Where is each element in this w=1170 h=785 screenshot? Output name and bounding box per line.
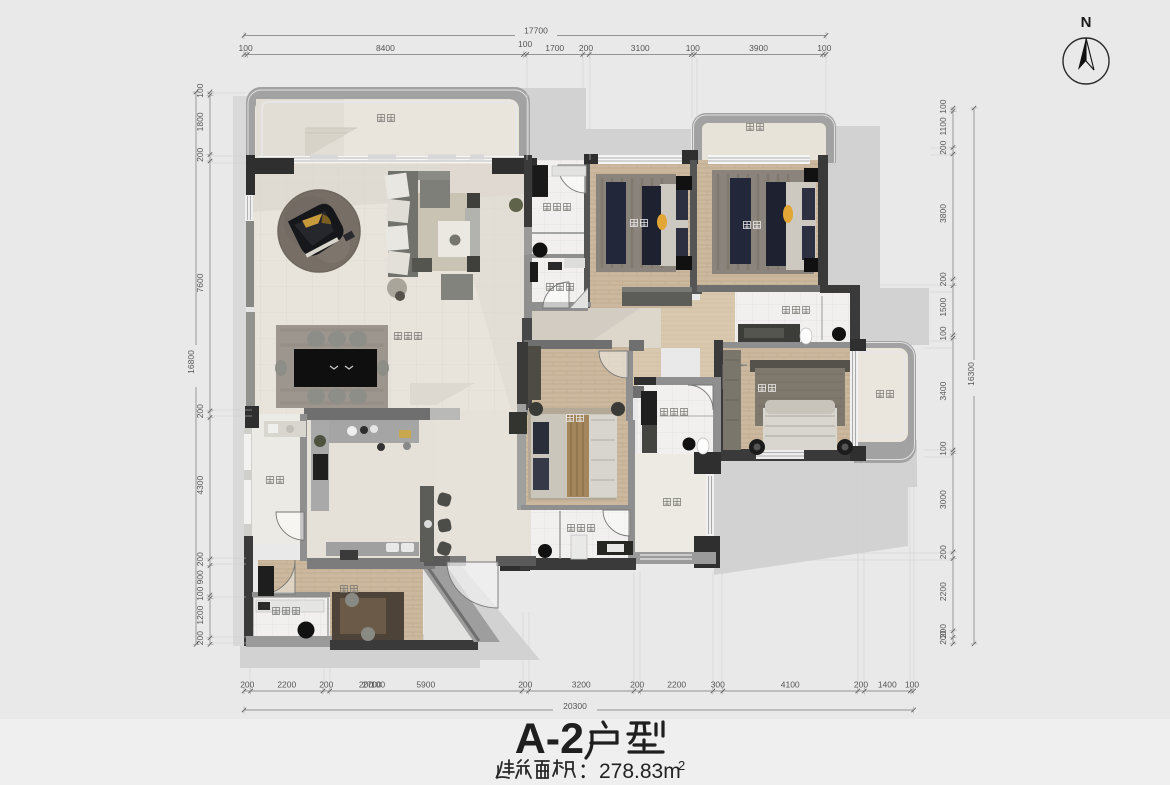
svg-text:3400: 3400 [938,381,948,400]
svg-text:200: 200 [195,631,205,645]
svg-text:100: 100 [905,680,919,690]
svg-text:200: 200 [195,404,205,418]
svg-text:2: 2 [678,758,685,773]
svg-text:200: 200 [630,680,644,690]
svg-text:2200: 2200 [938,582,948,601]
svg-text:100: 100 [371,680,385,690]
svg-text:100: 100 [686,43,700,53]
svg-text:16300: 16300 [966,362,976,386]
svg-text:200: 200 [195,147,205,161]
svg-text:8400: 8400 [376,43,395,53]
svg-text:200: 200 [938,272,948,286]
svg-text:300: 300 [711,680,725,690]
svg-text:200: 200 [240,680,254,690]
svg-text:100: 100 [938,441,948,455]
svg-text:100: 100 [195,586,205,600]
svg-text:1700: 1700 [545,43,564,53]
svg-text:17700: 17700 [524,26,548,36]
svg-text:200: 200 [195,552,205,566]
svg-text:100: 100 [518,39,532,49]
svg-text:200: 200 [854,680,868,690]
svg-text:200: 200 [938,140,948,154]
svg-text:5900: 5900 [416,680,435,690]
svg-text:16800: 16800 [186,350,196,374]
svg-text:A-2: A-2 [515,715,584,763]
svg-text:：278.83m: ：278.83m [578,760,681,783]
svg-text:2200: 2200 [277,680,296,690]
svg-text:N: N [1081,14,1092,31]
svg-text:4100: 4100 [781,680,800,690]
svg-text:900: 900 [195,570,205,584]
svg-text:1800: 1800 [195,112,205,131]
svg-text:200: 200 [518,680,532,690]
svg-text:3100: 3100 [631,43,650,53]
svg-text:200: 200 [938,630,948,644]
svg-text:3200: 3200 [572,680,591,690]
svg-text:1200: 1200 [195,605,205,624]
svg-text:1400: 1400 [878,680,897,690]
svg-text:100: 100 [239,43,253,53]
svg-text:100: 100 [195,83,205,97]
svg-text:100: 100 [938,326,948,340]
svg-text:4300: 4300 [195,475,205,494]
svg-text:7600: 7600 [195,273,205,292]
svg-text:3900: 3900 [749,43,768,53]
svg-text:100: 100 [938,99,948,113]
svg-text:20300: 20300 [563,701,587,711]
svg-text:3000: 3000 [938,490,948,509]
svg-text:200: 200 [319,680,333,690]
svg-text:100: 100 [817,43,831,53]
svg-text:200: 200 [938,545,948,559]
svg-text:1500: 1500 [938,297,948,316]
svg-text:1100: 1100 [938,117,948,136]
svg-text:2200: 2200 [667,680,686,690]
svg-text:3800: 3800 [938,204,948,223]
svg-text:200: 200 [579,43,593,53]
